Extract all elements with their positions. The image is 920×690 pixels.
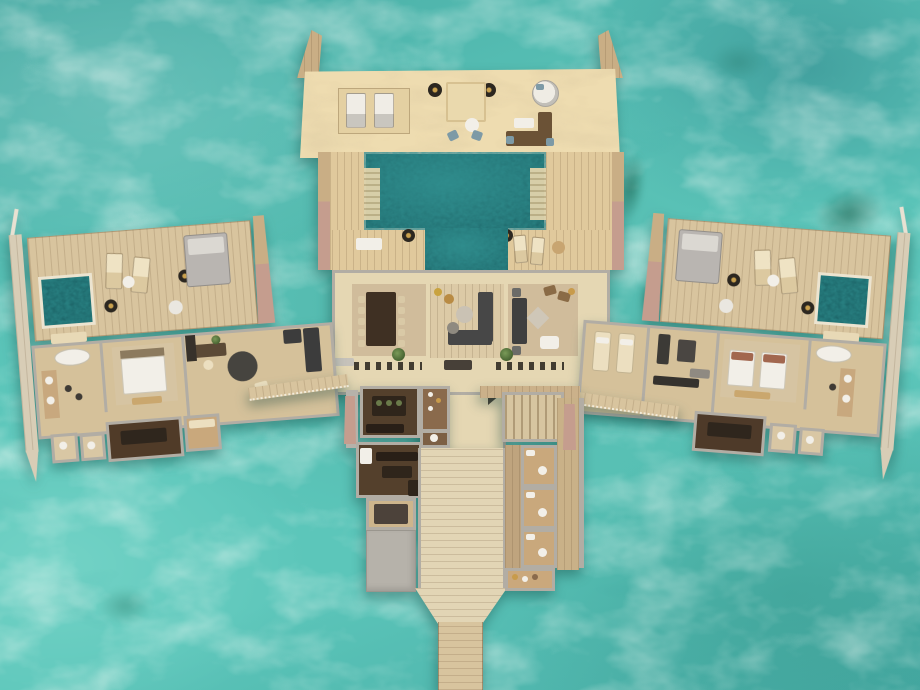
- right-wing: [562, 195, 915, 472]
- seagrass-patch: [88, 580, 162, 632]
- gym-machine: [677, 339, 697, 362]
- seagrass-patch: [700, 36, 776, 88]
- bed: [121, 355, 168, 394]
- desk: [192, 343, 227, 359]
- left-wing: [6, 197, 359, 474]
- sun-lounger: [130, 256, 150, 293]
- ocean-scene: [0, 0, 920, 690]
- plunge-pool: [814, 272, 872, 328]
- sun-lounger: [778, 257, 798, 294]
- gym-mat: [689, 368, 710, 379]
- daybed-pillows: [187, 236, 224, 255]
- towel: [620, 339, 633, 346]
- sofa-chaise: [283, 329, 302, 344]
- daybed-pillows: [681, 233, 718, 252]
- plunge-pool: [38, 273, 96, 329]
- bed-pillow: [763, 354, 786, 364]
- treadmill: [656, 334, 670, 365]
- sofa: [303, 327, 322, 372]
- cabinet: [185, 335, 197, 362]
- bed-pillow: [731, 352, 754, 362]
- sun-lounger: [105, 253, 123, 289]
- towel: [596, 337, 609, 344]
